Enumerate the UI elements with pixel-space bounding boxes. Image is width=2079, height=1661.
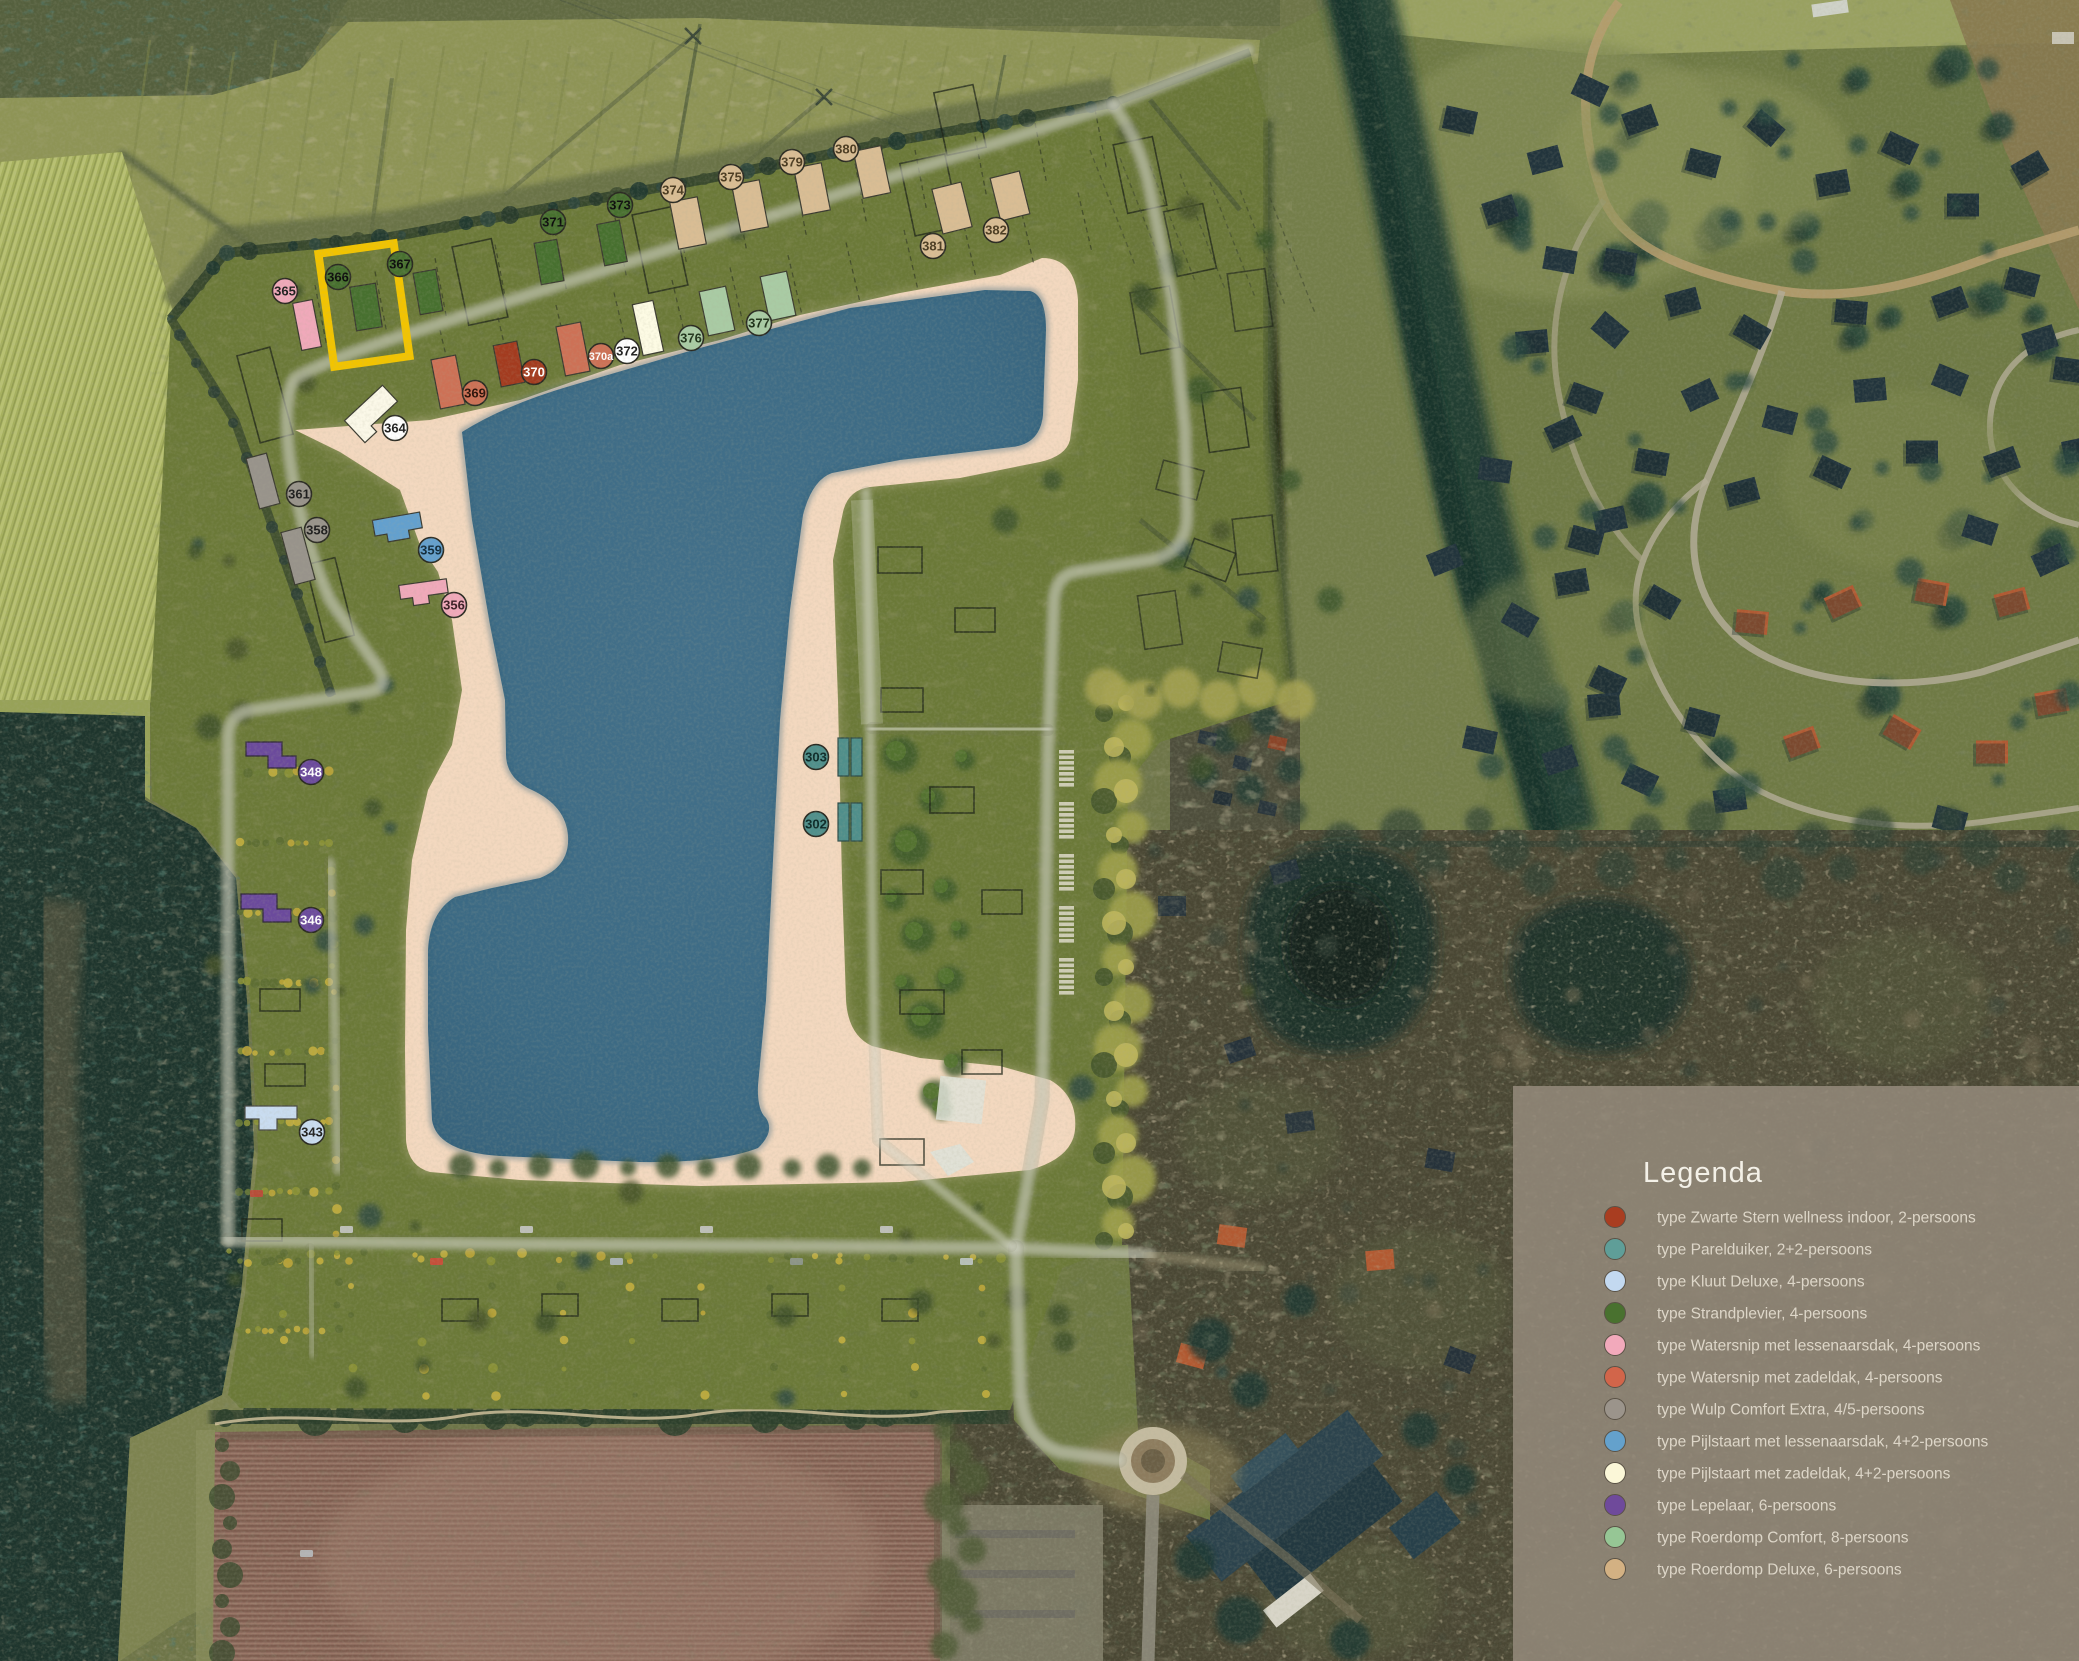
svg-text:type Roerdomp Comfort, 8-perso: type Roerdomp Comfort, 8-persoons xyxy=(1657,1530,1909,1547)
svg-text:type Roerdomp Deluxe, 6-persoo: type Roerdomp Deluxe, 6-persoons xyxy=(1657,1562,1902,1579)
svg-text:type Wulp Comfort Extra, 4/5-p: type Wulp Comfort Extra, 4/5-persoons xyxy=(1657,1402,1925,1419)
svg-text:type Lepelaar, 6-persoons: type Lepelaar, 6-persoons xyxy=(1657,1498,1836,1515)
svg-text:type Pijlstaart met lessenaars: type Pijlstaart met lessenaarsdak, 4+2-p… xyxy=(1657,1434,1989,1451)
svg-text:type Pijlstaart met zadeldak,: type Pijlstaart met zadeldak, 4+2-persoo… xyxy=(1657,1466,1951,1483)
svg-text:Legenda: Legenda xyxy=(1643,1157,1763,1189)
svg-text:type Strandplevier, 4-persoons: type Strandplevier, 4-persoons xyxy=(1657,1306,1867,1323)
svg-text:type Watersnip met zadeldak, 4: type Watersnip met zadeldak, 4-persoons xyxy=(1657,1370,1943,1387)
svg-text:type Kluut Deluxe, 4-persoons: type Kluut Deluxe, 4-persoons xyxy=(1657,1274,1865,1291)
svg-text:type Parelduiker, 2+2-persoons: type Parelduiker, 2+2-persoons xyxy=(1657,1242,1872,1259)
svg-text:type Watersnip met lessenaarsd: type Watersnip met lessenaarsdak, 4-pers… xyxy=(1657,1338,1981,1355)
svg-text:type Zwarte Stern wellness ind: type Zwarte Stern wellness indoor, 2-per… xyxy=(1657,1210,1976,1227)
